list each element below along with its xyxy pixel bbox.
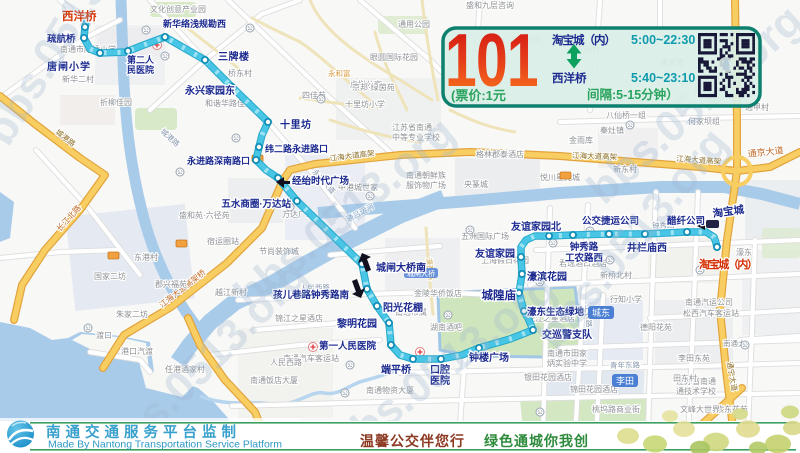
svg-text:(票价:1元: (票价:1元 [451, 88, 506, 103]
svg-text:5:00~22:30: 5:00~22:30 [631, 33, 695, 47]
svg-text:阳光花棚: 阳光花棚 [383, 301, 423, 314]
svg-text:永进路深南路口: 永进路深南路口 [186, 155, 250, 166]
svg-text:公: 公 [247, 26, 253, 32]
svg-text:郡兴福苑: 郡兴福苑 [155, 279, 187, 289]
svg-text:银田花园酒店: 银田花园酒店 [524, 372, 572, 382]
svg-text:第一人民医院: 第一人民医院 [319, 340, 377, 352]
svg-text:温馨公交伴您行: 温馨公交伴您行 [360, 433, 465, 449]
svg-text:李田东苑: 李田东苑 [678, 353, 710, 363]
svg-text:十里坊小学: 十里坊小学 [345, 99, 385, 109]
svg-text:公: 公 [318, 97, 324, 103]
svg-text:朱家二坊: 朱家二坊 [116, 309, 148, 319]
svg-text:西洋桥: 西洋桥 [552, 71, 587, 85]
svg-text:永和富: 永和富 [328, 68, 351, 78]
svg-text:盛和苑·六径苑: 盛和苑·六径苑 [179, 210, 230, 220]
svg-text:宿运圈站: 宿运圈站 [207, 236, 239, 246]
svg-text:金陵华侨饭店: 金陵华侨饭店 [414, 288, 462, 298]
svg-text:文化创意产业园: 文化创意产业园 [150, 4, 206, 14]
svg-text:淘宝城（内）: 淘宝城（内） [699, 257, 757, 271]
svg-text:八仙桥一组: 八仙桥一组 [606, 110, 646, 120]
svg-text:通用公园: 通用公园 [398, 19, 430, 29]
svg-text:文峰大世界: 文峰大世界 [680, 404, 720, 414]
svg-text:公: 公 [467, 228, 473, 234]
svg-text:间隔:5-15分钟）: 间隔:5-15分钟） [587, 87, 679, 102]
svg-text:五水商圈·万达站: 五水商圈·万达站 [221, 198, 291, 210]
svg-text:锦田花园酒店: 锦田花园酒店 [570, 384, 618, 394]
svg-text:新华二村: 新华二村 [62, 74, 94, 84]
svg-text:人民西路: 人民西路 [270, 357, 302, 367]
svg-text:南通汽运公司: 南通汽运公司 [685, 297, 733, 307]
svg-text:第二人: 第二人 [127, 54, 155, 65]
svg-text:友谊家园北: 友谊家园北 [511, 220, 561, 233]
svg-text:折柳佳园: 折柳佳园 [100, 97, 132, 107]
svg-text:友谊家园: 友谊家园 [475, 247, 515, 260]
svg-text:公: 公 [347, 363, 353, 369]
svg-text:桥东村: 桥东村 [228, 68, 252, 78]
svg-text:三牌楼: 三牌楼 [218, 50, 250, 63]
svg-text:绿色通城你我创: 绿色通城你我创 [484, 433, 589, 449]
svg-text:Made By Nantong Transportation: Made By Nantong Transportation Service P… [48, 439, 282, 451]
svg-text:央篆城: 央篆城 [464, 179, 488, 189]
svg-text:德阳花苑: 德阳花苑 [640, 322, 672, 332]
svg-text:港口汽渡: 港口汽渡 [121, 346, 153, 356]
svg-text:炳实验中学: 炳实验中学 [547, 358, 587, 368]
svg-text:渡口: 渡口 [96, 330, 112, 340]
svg-text:南通饭店大厦: 南通饭店大厦 [250, 375, 298, 385]
svg-text:松西汽车客运站: 松西汽车客运站 [683, 308, 739, 318]
svg-text:永兴家园东: 永兴家园东 [184, 84, 235, 97]
svg-text:淘宝城（内）: 淘宝城（内） [552, 33, 615, 47]
svg-text:盛和九层咨询: 盛和九层咨询 [466, 0, 514, 10]
svg-text:通技术学校: 通技术学校 [676, 386, 716, 396]
svg-text:5:40~23:10: 5:40~23:10 [631, 71, 695, 85]
svg-text:东港村: 东港村 [134, 252, 158, 262]
svg-text:公: 公 [445, 313, 451, 319]
svg-text:桃坞路商业街: 桃坞路商业街 [592, 404, 640, 414]
svg-text:民医院: 民医院 [127, 64, 154, 75]
svg-text:十里坊: 十里坊 [280, 118, 312, 131]
svg-text:国家二坊: 国家二坊 [94, 271, 126, 281]
svg-text:公: 公 [233, 136, 239, 142]
svg-text:公: 公 [537, 410, 543, 416]
svg-text:公: 公 [550, 241, 556, 247]
svg-text:金雨库: 金雨库 [569, 135, 593, 145]
svg-text:格林郡泰酒店: 格林郡泰酒店 [476, 149, 524, 159]
svg-text:青年东路: 青年东路 [610, 359, 641, 370]
svg-text:新华络浅规勘西: 新华络浅规勘西 [163, 18, 226, 29]
svg-text:眼圆国际花园: 眼圆国际花园 [370, 52, 418, 62]
svg-text:田东村: 田东村 [673, 373, 697, 383]
svg-text:黎明花园: 黎明花园 [337, 317, 377, 330]
svg-text:公: 公 [162, 54, 168, 60]
svg-text:公: 公 [742, 343, 748, 349]
svg-text:公: 公 [85, 326, 91, 332]
svg-text:京邦·绿茵苑: 京邦·绿茵苑 [352, 82, 395, 92]
svg-text:纬二路永进路口: 纬二路永进路口 [265, 143, 328, 154]
svg-text:濠东: 濠东 [736, 247, 752, 257]
svg-text:公: 公 [143, 28, 149, 34]
svg-text:公: 公 [342, 391, 348, 397]
svg-text:李田: 李田 [616, 375, 634, 386]
svg-text:秦灶镇: 秦灶镇 [600, 125, 624, 135]
svg-text:城闸大桥南: 城闸大桥南 [376, 261, 426, 274]
svg-text:公: 公 [177, 170, 183, 176]
